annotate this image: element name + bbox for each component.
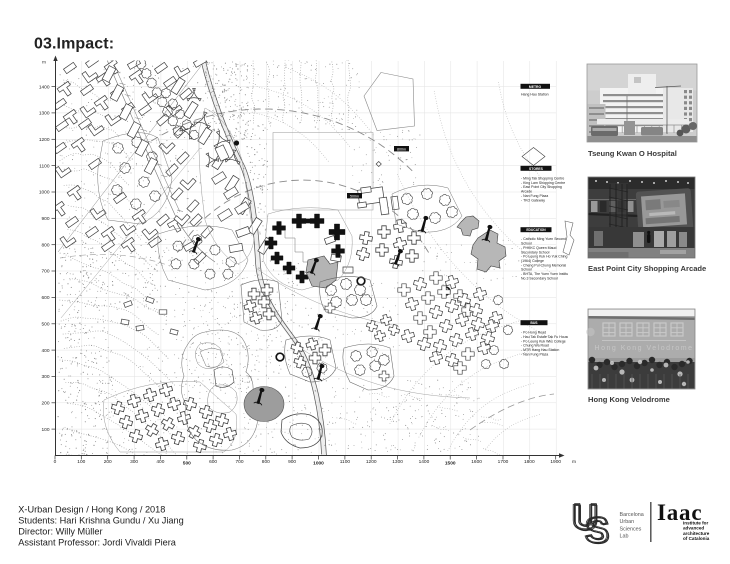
- svg-text:architecture: architecture: [683, 531, 710, 536]
- svg-text:1400: 1400: [39, 84, 50, 90]
- svg-text:800m: 800m: [397, 147, 406, 151]
- svg-text:advanced: advanced: [683, 526, 704, 531]
- svg-text:500: 500: [41, 321, 49, 327]
- svg-text:Tseung Kwan O Hospital: Tseung Kwan O Hospital: [588, 149, 677, 158]
- svg-text:1400: 1400: [419, 459, 430, 465]
- svg-text:600: 600: [41, 295, 49, 301]
- svg-text:1200: 1200: [39, 137, 50, 143]
- svg-text:100: 100: [77, 459, 85, 465]
- svg-text:1100: 1100: [39, 163, 50, 169]
- svg-text:1900: 1900: [550, 459, 561, 465]
- svg-text:Urban: Urban: [620, 519, 635, 525]
- svg-text:300: 300: [130, 459, 138, 465]
- svg-text:Barcelona: Barcelona: [620, 512, 644, 518]
- svg-text:STORES: STORES: [529, 167, 544, 171]
- svg-text:of Catalonia: of Catalonia: [683, 536, 710, 541]
- svg-text:Hong Kong Velodrome: Hong Kong Velodrome: [588, 395, 670, 404]
- svg-text:900: 900: [288, 459, 296, 465]
- svg-text:- TKO Gateway: - TKO Gateway: [521, 198, 545, 202]
- svg-text:Assistant Professor: Jordi Viv: Assistant Professor: Jordi Vivaldi Piera: [18, 538, 177, 548]
- svg-text:700: 700: [235, 459, 243, 465]
- svg-text:0: 0: [54, 459, 57, 465]
- svg-text:- Nan Fung Plaza: - Nan Fung Plaza: [521, 352, 548, 356]
- svg-text:800: 800: [262, 459, 270, 465]
- svg-text:1300: 1300: [39, 111, 50, 117]
- svg-text:900: 900: [41, 216, 49, 222]
- svg-text:BUS: BUS: [530, 321, 538, 325]
- svg-text:S: S: [586, 510, 610, 551]
- svg-text:1700: 1700: [498, 459, 509, 465]
- svg-text:1600: 1600: [471, 459, 482, 465]
- svg-text:400: 400: [156, 459, 164, 465]
- svg-text:300: 300: [41, 374, 49, 380]
- svg-text:1300: 1300: [392, 459, 403, 465]
- svg-text:400: 400: [41, 348, 49, 354]
- svg-text:200: 200: [104, 459, 112, 465]
- svg-text:500m: 500m: [350, 194, 359, 198]
- svg-text:METRO: METRO: [529, 85, 542, 89]
- svg-text:East Point City Shopping Arcad: East Point City Shopping Arcade: [588, 264, 706, 273]
- svg-text:1000: 1000: [313, 461, 324, 467]
- svg-text:EDUCATION: EDUCATION: [526, 228, 546, 232]
- svg-text:1800: 1800: [524, 459, 535, 465]
- svg-text:No.3 Secondary School: No.3 Secondary School: [521, 276, 558, 280]
- svg-text:Lab: Lab: [620, 534, 629, 540]
- svg-text:1200: 1200: [366, 459, 377, 465]
- svg-text:Institute for: Institute for: [683, 520, 708, 525]
- svg-text:Director: Willy Müller: Director: Willy Müller: [18, 527, 102, 537]
- svg-text:1500: 1500: [445, 461, 456, 467]
- svg-text:1100: 1100: [340, 459, 351, 465]
- svg-text:Sciences: Sciences: [620, 526, 642, 532]
- svg-text:03.Impact:: 03.Impact:: [34, 36, 114, 53]
- svg-text:1000: 1000: [39, 190, 50, 196]
- svg-text:Hong Kong Velodrome: Hong Kong Velodrome: [595, 345, 694, 352]
- svg-text:m: m: [572, 460, 576, 465]
- svg-text:200: 200: [41, 401, 49, 407]
- svg-text:100: 100: [41, 427, 49, 433]
- svg-text:Hang Hau Station: Hang Hau Station: [521, 93, 549, 97]
- svg-text:m: m: [42, 61, 46, 66]
- svg-text:500: 500: [183, 461, 191, 467]
- svg-text:Students: Hari Krishna Gundu /: Students: Hari Krishna Gundu / Xu Jiang: [18, 516, 183, 526]
- svg-text:700: 700: [41, 269, 49, 275]
- svg-text:800: 800: [41, 242, 49, 248]
- svg-text:600: 600: [209, 459, 217, 465]
- svg-text:X-Urban Design / Hong Kong / 2: X-Urban Design / Hong Kong / 2018: [18, 505, 165, 515]
